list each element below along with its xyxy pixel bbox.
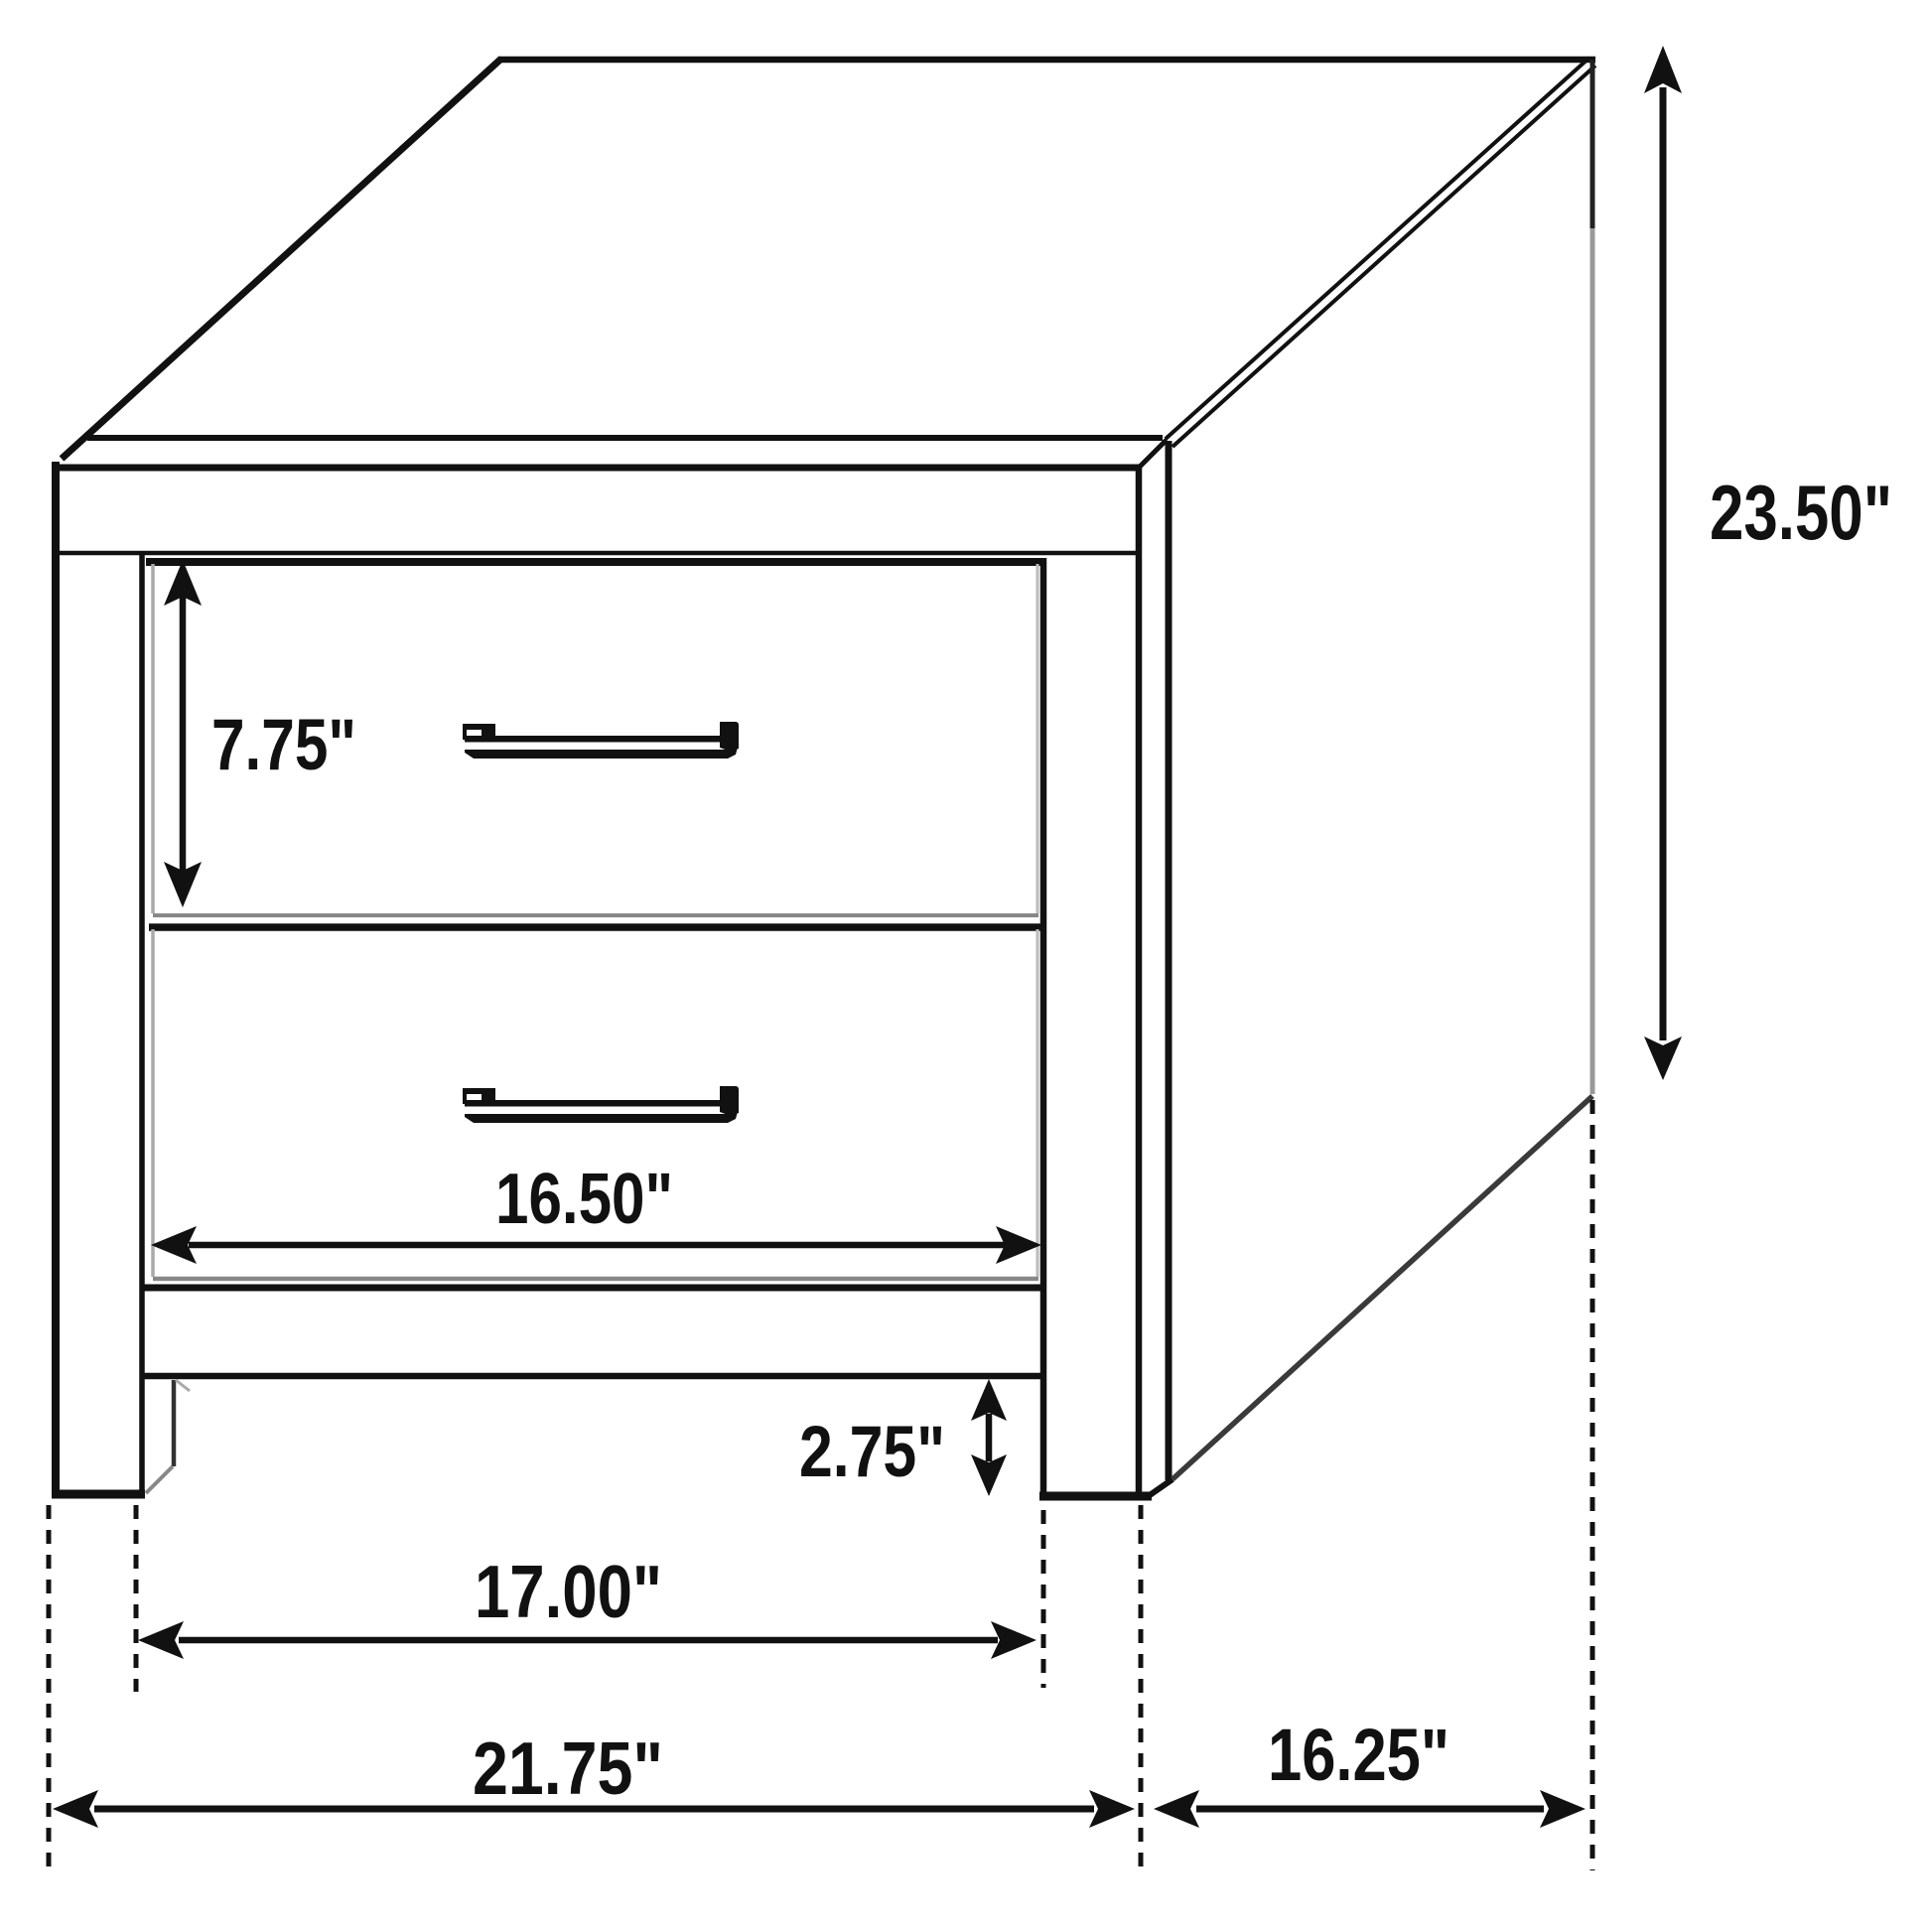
svg-text:2.75": 2.75" <box>799 1412 945 1492</box>
svg-text:16.25": 16.25" <box>1268 1714 1449 1796</box>
svg-text:7.75": 7.75" <box>211 705 356 785</box>
svg-text:21.75": 21.75" <box>473 1726 663 1810</box>
svg-text:16.50": 16.50" <box>495 1160 673 1239</box>
svg-text:23.50": 23.50" <box>1710 469 1892 556</box>
svg-text:17.00": 17.00" <box>475 1550 662 1633</box>
